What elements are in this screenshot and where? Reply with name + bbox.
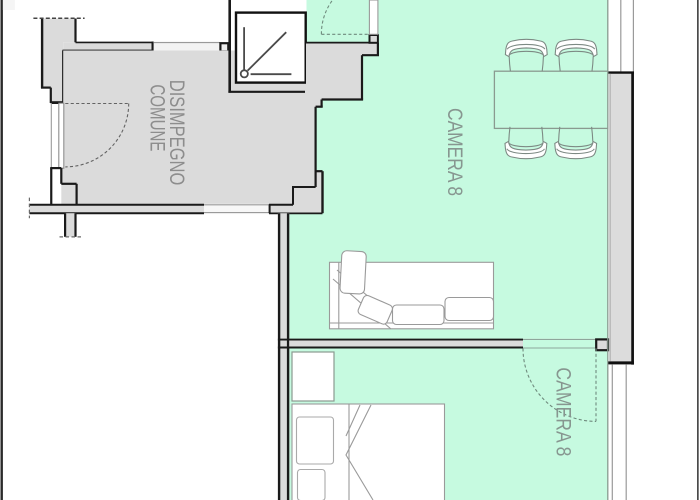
svg-text:CAMERA 8: CAMERA 8 [552,367,575,456]
svg-text:CAMERA 8: CAMERA 8 [443,108,466,196]
svg-text:COMUNE: COMUNE [145,84,168,151]
